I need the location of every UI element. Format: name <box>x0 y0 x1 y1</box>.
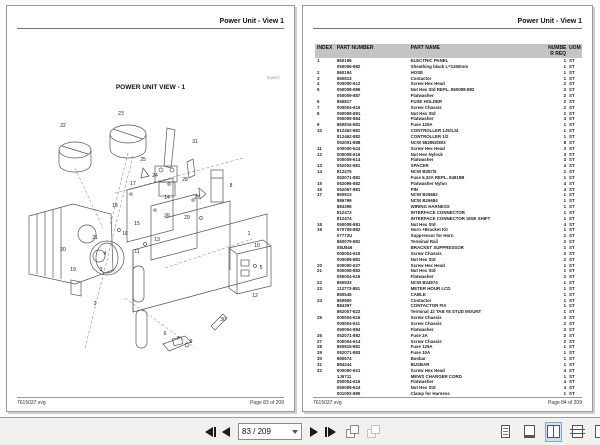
diagram-callout-number: 12 <box>252 293 258 299</box>
col-part-number: PART NUMBER <box>337 45 411 51</box>
parts-table-header: INDEX PART NUMBER PART NAME NUMBE R REQ … <box>315 44 582 58</box>
viewer-toolbar <box>0 417 600 445</box>
continuous-view-icon[interactable] <box>569 422 586 442</box>
diagram-callout-number: 16 <box>122 231 128 237</box>
diagram-callout-number: 17 <box>130 181 136 187</box>
drawing-number: 7615037 <box>266 76 280 80</box>
last-page-icon[interactable] <box>322 424 338 440</box>
next-view-icon <box>367 425 380 438</box>
page-footer: 7615037.svg Page 84 of 209 <box>313 397 582 406</box>
document-page-left: Power Unit - View 1 7615037 POWER UNIT V… <box>6 5 295 412</box>
diagram-callout-number: 21 <box>92 235 98 241</box>
page-header-title: Power Unit - View 1 <box>17 18 284 29</box>
continuous-facing-view-icon[interactable] <box>593 422 600 442</box>
diagram-callout-number: 3 <box>100 267 103 273</box>
page-number-input[interactable] <box>242 427 290 436</box>
footer-page-number: Page 84 of 209 <box>548 400 582 406</box>
diagram-callout-number: 15 <box>134 221 140 227</box>
footer-page-number: Page 83 of 209 <box>250 400 284 406</box>
page-number-box[interactable] <box>238 423 302 440</box>
col-uom: UOM <box>566 45 582 51</box>
diagram-callout-number: 30 <box>220 317 226 323</box>
col-index: INDEX <box>315 45 337 51</box>
col-number-req: NUMBE R REQ <box>548 45 566 57</box>
diagram-callout-number: 28 <box>182 177 188 183</box>
diagram-callout-number: 2 <box>94 301 97 307</box>
diagram-callout-number: 19 <box>70 267 76 273</box>
power-unit-diagram-art <box>15 98 287 398</box>
diagram-callout-number: 22 <box>60 123 66 129</box>
diagram-callout-number: 29 <box>184 215 190 221</box>
diagram-callout-number: 25 <box>140 157 146 163</box>
diagram-callout-number: 13 <box>154 237 160 243</box>
diagram-callout-number: 4 <box>104 251 107 257</box>
exploded-view-diagram: 2223312524172881418272629151612113112043… <box>15 98 287 398</box>
col-part-name: PART NAME <box>411 45 548 51</box>
page-list-caret-icon[interactable] <box>292 430 298 434</box>
diagram-callout-number: 26 <box>164 213 170 219</box>
parts-table: INDEX PART NUMBER PART NAME NUMBE R REQ … <box>315 44 582 397</box>
diagram-title: POWER UNIT VIEW - 1 <box>7 84 294 91</box>
page-header-title: Power Unit - View 1 <box>313 18 582 29</box>
single-page-view-icon[interactable] <box>497 422 514 442</box>
diagram-callout-number: 1 <box>248 231 251 237</box>
diagram-callout-number: 5 <box>260 265 263 271</box>
previous-page-icon[interactable] <box>218 424 234 440</box>
diagram-callout-number: 11 <box>134 249 139 255</box>
facing-pages-view-icon[interactable] <box>545 422 562 442</box>
diagram-callout-number: 10 <box>254 243 260 249</box>
footer-filename: 7615037.svg <box>313 400 342 406</box>
parts-table-body: 1860196ELECTRIC PANEL1ST050055-882Sheath… <box>315 58 582 397</box>
diagram-callout-number: 7 <box>177 336 180 342</box>
diagram-callout-number: 23 <box>118 111 124 117</box>
diagram-callout-number: 18 <box>112 203 118 209</box>
document-page-right: Power Unit - View 1 INDEX PART NUMBER PA… <box>302 5 593 412</box>
previous-view-icon[interactable] <box>346 425 359 438</box>
footer-filename: 7615037.svg <box>17 400 46 406</box>
diagram-callout-number: 6 <box>164 331 167 337</box>
page-layout-icons <box>497 422 600 442</box>
page-footer: 7615037.svg Page 83 of 209 <box>17 397 284 406</box>
first-page-icon[interactable] <box>202 424 218 440</box>
diagram-callout-number: 24 <box>152 173 158 179</box>
diagram-callout-number: 8 <box>230 183 233 189</box>
diagram-callout-number: 27 <box>194 195 200 201</box>
diagram-callout-number: 14 <box>164 195 170 201</box>
fit-page-view-icon[interactable] <box>521 422 538 442</box>
next-page-icon[interactable] <box>306 424 322 440</box>
diagram-callout-number: 9 <box>190 339 193 345</box>
pdf-viewer: Power Unit - View 1 7615037 POWER UNIT V… <box>0 0 600 445</box>
diagram-callout-number: 20 <box>60 247 66 253</box>
diagram-callout-number: 31 <box>192 139 198 145</box>
